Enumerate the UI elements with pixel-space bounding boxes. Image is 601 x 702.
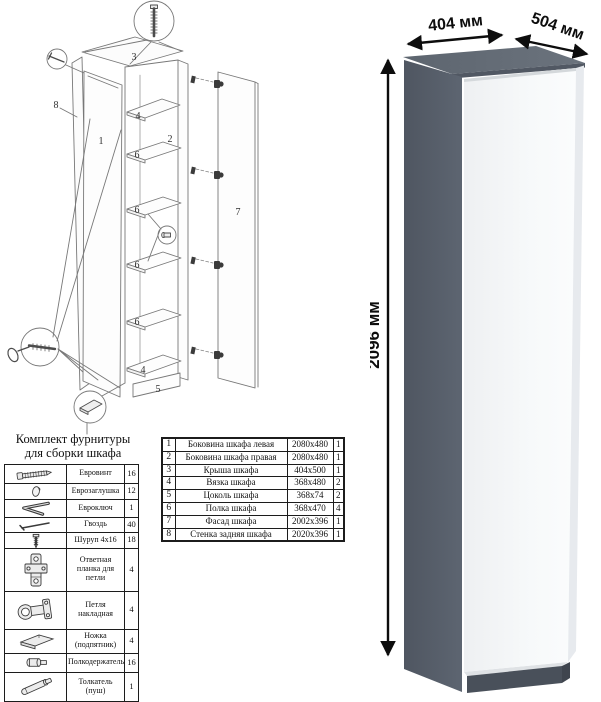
assembly-sheet: 8 1 2 3 4 6 6 6 6 4 5 7 Комплект фурниту… — [0, 0, 601, 700]
label-shelf-2: 6 — [135, 205, 140, 216]
label-back-panel: 8 — [54, 100, 59, 111]
part-size: 368x74 — [287, 490, 333, 503]
label-facade: 7 — [236, 207, 241, 218]
part-name: Боковина шкафа левая — [175, 438, 287, 451]
hardware-item-qty: 4 — [125, 629, 139, 653]
part-size: 368x470 — [287, 502, 333, 515]
right-side-panel-shape — [178, 60, 188, 380]
hardware-row: Ответная планка для петли 4 — [5, 548, 139, 591]
parts-row: 2 Боковина шкафа правая 2080x480 1 — [162, 451, 344, 464]
label-right-side: 2 — [168, 134, 173, 145]
part-num: 6 — [162, 502, 175, 515]
height-dimension: 2096 мм — [370, 60, 388, 655]
part-num: 8 — [162, 528, 175, 541]
hardware-item-name: Толкатель (пуш) — [67, 672, 125, 701]
facade-shape — [218, 72, 255, 388]
label-roof: 3 — [132, 52, 137, 63]
label-left-side: 1 — [99, 136, 104, 147]
parts-row: 6 Полка шкафа 368x470 4 — [162, 502, 344, 515]
exploded-diagram: 8 1 2 3 4 6 6 6 6 4 5 7 — [0, 0, 370, 435]
hardware-kit-title-line2: для сборки шкафа — [3, 447, 143, 461]
hardware-row: Толкатель (пуш) 1 — [5, 672, 139, 701]
hardware-item-name: Еврозаглушка — [67, 483, 125, 499]
cabinet-body — [403, 46, 585, 693]
hardware-item-name: Ответная планка для петли — [67, 548, 125, 591]
hardware-kit: Комплект фурнитуры для сборки шкафа Евро… — [3, 433, 143, 702]
part-qty: 1 — [333, 528, 344, 541]
hardware-item-qty: 1 — [125, 672, 139, 701]
label-tie-bottom: 4 — [141, 365, 146, 376]
hardware-row: Петля накладная 4 — [5, 591, 139, 629]
cabinet-render: 2096 мм 404 мм 504 мм — [370, 0, 601, 700]
pusher-icon — [5, 672, 67, 701]
part-size: 404x500 — [287, 464, 333, 477]
part-size: 2020x396 — [287, 528, 333, 541]
part-name: Цоколь шкафа — [175, 490, 287, 503]
part-num: 3 — [162, 464, 175, 477]
label-shelf-3: 6 — [135, 260, 140, 271]
screw-icon — [5, 532, 67, 548]
parts-row: 4 Вязка шкафа 368x480 2 — [162, 477, 344, 490]
width-dimension-label: 404 мм — [427, 12, 483, 35]
part-qty: 1 — [333, 515, 344, 528]
part-num: 5 — [162, 490, 175, 503]
part-qty: 2 — [333, 477, 344, 490]
part-num: 4 — [162, 477, 175, 490]
parts-table: 1 Боковина шкафа левая 2080x480 1 2 Боко… — [161, 437, 345, 542]
left-side-panel-shape — [83, 71, 122, 397]
parts-row: 1 Боковина шкафа левая 2080x480 1 — [162, 438, 344, 451]
part-qty: 1 — [333, 438, 344, 451]
part-num: 7 — [162, 515, 175, 528]
hinge-icon — [5, 591, 67, 629]
part-qty: 2 — [333, 490, 344, 503]
shelf-pin-icon — [5, 653, 67, 672]
hardware-item-qty: 40 — [125, 517, 139, 532]
depth-dimension-label: 504 мм — [529, 10, 586, 44]
part-name: Полка шкафа — [175, 502, 287, 515]
hardware-item-name: Ножка (подпятник) — [67, 629, 125, 653]
hardware-row: Еврозаглушка 12 — [5, 483, 139, 499]
parts-row: 7 Фасад шкафа 2002x396 1 — [162, 515, 344, 528]
hardware-item-qty: 12 — [125, 483, 139, 499]
hinge-plate-icon — [5, 548, 67, 591]
hardware-row: Гвоздь 40 — [5, 517, 139, 532]
hardware-table: Евровинт 16 Еврозаглушка 12 — [4, 464, 139, 702]
parts-table-wrap: 1 Боковина шкафа левая 2080x480 1 2 Боко… — [161, 437, 345, 542]
part-size: 368x480 — [287, 477, 333, 490]
cabinet-left-side — [404, 60, 462, 692]
part-num: 2 — [162, 451, 175, 464]
hardware-kit-title: Комплект фурнитуры для сборки шкафа — [3, 433, 143, 461]
hardware-item-qty: 16 — [125, 464, 139, 483]
height-dimension-label: 2096 мм — [370, 301, 383, 369]
part-name: Боковина шкафа правая — [175, 451, 287, 464]
hardware-item-name: Полкодержатель — [67, 653, 125, 672]
parts-row: 3 Крыша шкафа 404x500 1 — [162, 464, 344, 477]
nail-icon — [5, 517, 67, 532]
hardware-item-qty: 18 — [125, 532, 139, 548]
part-qty: 4 — [333, 502, 344, 515]
hardware-item-name: Петля накладная — [67, 591, 125, 629]
width-dimension: 404 мм — [408, 12, 502, 44]
part-name: Вязка шкафа — [175, 477, 287, 490]
hardware-row: Евровинт 16 — [5, 464, 139, 483]
parts-row: 5 Цоколь шкафа 368x74 2 — [162, 490, 344, 503]
hardware-item-name: Шуруп 4x16 — [67, 532, 125, 548]
label-plinth: 5 — [156, 384, 161, 395]
label-shelf-1: 6 — [135, 150, 140, 161]
hardware-row: Ножка (подпятник) 4 — [5, 629, 139, 653]
hardware-row: Полкодержатель 16 — [5, 653, 139, 672]
eurokey-icon — [5, 499, 67, 517]
part-name: Крыша шкафа — [175, 464, 287, 477]
label-tie-top: 4 — [136, 111, 141, 122]
hardware-item-name: Гвоздь — [67, 517, 125, 532]
hardware-item-qty: 4 — [125, 548, 139, 591]
part-size: 2002x396 — [287, 515, 333, 528]
part-name: Стенка задняя шкафа — [175, 528, 287, 541]
parts-row: 8 Стенка задняя шкафа 2020x396 1 — [162, 528, 344, 541]
label-shelf-4: 6 — [135, 317, 140, 328]
part-name: Фасад шкафа — [175, 515, 287, 528]
hardware-item-qty: 16 — [125, 653, 139, 672]
hardware-row: Шуруп 4x16 18 — [5, 532, 139, 548]
part-size: 2080x480 — [287, 438, 333, 451]
part-size: 2080x480 — [287, 451, 333, 464]
foot-icon — [5, 629, 67, 653]
hardware-row: Евроключ 1 — [5, 499, 139, 517]
part-num: 1 — [162, 438, 175, 451]
hardware-item-name: Евровинт — [67, 464, 125, 483]
part-qty: 1 — [333, 451, 344, 464]
part-qty: 1 — [333, 464, 344, 477]
hardware-item-name: Евроключ — [67, 499, 125, 517]
hardware-item-qty: 4 — [125, 591, 139, 629]
euroscrew-icon — [5, 464, 67, 483]
hardware-item-qty: 1 — [125, 499, 139, 517]
eurocap-icon — [5, 483, 67, 499]
cabinet-door — [464, 68, 576, 672]
hardware-kit-title-line1: Комплект фурнитуры — [3, 433, 143, 447]
